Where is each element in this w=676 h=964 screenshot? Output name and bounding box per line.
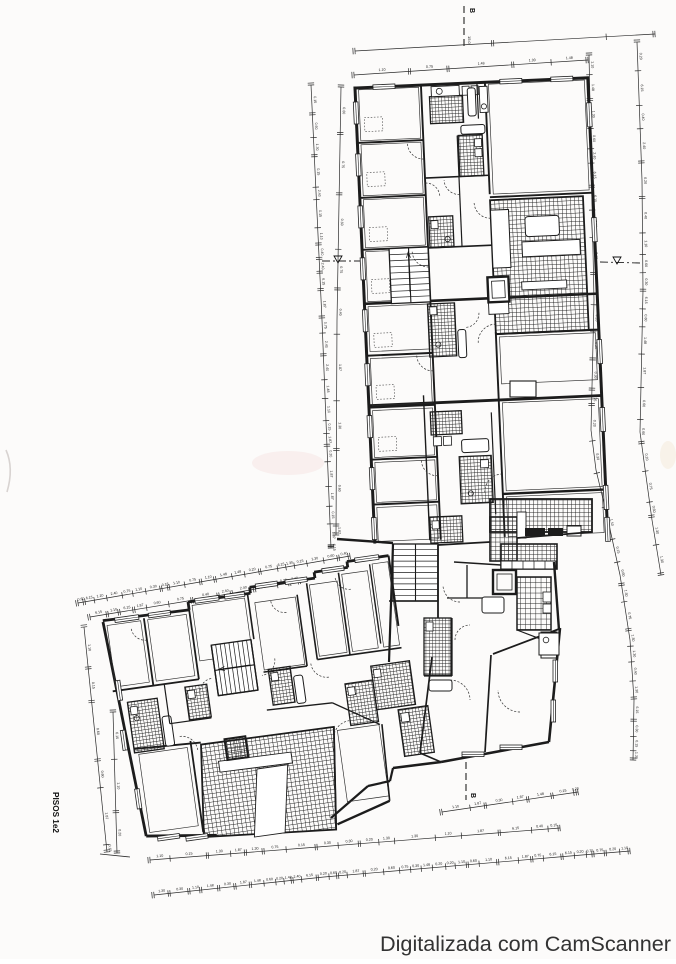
- svg-text:0.60: 0.60: [644, 314, 648, 321]
- svg-text:0.20: 0.20: [366, 837, 373, 842]
- svg-text:0.20: 0.20: [643, 177, 647, 184]
- svg-text:1.30: 1.30: [634, 686, 638, 693]
- svg-text:0.20: 0.20: [328, 450, 332, 457]
- svg-text:1.10: 1.10: [444, 831, 451, 836]
- svg-text:0.20: 0.20: [639, 53, 643, 60]
- svg-text:1.87: 1.87: [328, 436, 332, 443]
- svg-text:0.15: 0.15: [550, 823, 557, 828]
- svg-text:0.40: 0.40: [536, 824, 543, 829]
- svg-text:1.87: 1.87: [352, 869, 359, 874]
- svg-text:1.48: 1.48: [566, 56, 573, 60]
- svg-text:1.10: 1.10: [378, 68, 385, 72]
- svg-text:0.30: 0.30: [324, 841, 331, 846]
- svg-text:0.20: 0.20: [276, 876, 283, 881]
- svg-text:0.60: 0.60: [266, 877, 273, 882]
- svg-text:0.20: 0.20: [435, 862, 442, 867]
- svg-text:1.48: 1.48: [326, 385, 330, 392]
- svg-text:0.20: 0.20: [592, 420, 596, 427]
- svg-text:6.15: 6.15: [644, 297, 648, 304]
- svg-text:PISOS 1e2: PISOS 1e2: [51, 792, 60, 833]
- svg-text:2.40: 2.40: [293, 874, 300, 879]
- svg-text:6.15: 6.15: [635, 706, 639, 713]
- svg-text:Digitalizada com CamScanner: Digitalizada com CamScanner: [380, 933, 671, 956]
- svg-text:1.87: 1.87: [104, 812, 109, 819]
- svg-text:6.15: 6.15: [640, 84, 644, 91]
- svg-text:6.15: 6.15: [332, 544, 336, 551]
- svg-text:1.87: 1.87: [522, 854, 529, 859]
- svg-text:1.48: 1.48: [207, 883, 214, 888]
- svg-text:1.87: 1.87: [338, 364, 342, 371]
- svg-text:B: B: [469, 793, 476, 798]
- svg-text:6.15: 6.15: [306, 873, 313, 878]
- svg-text:0.20: 0.20: [320, 871, 327, 876]
- svg-text:1.30: 1.30: [411, 834, 418, 839]
- svg-text:6.15: 6.15: [115, 732, 119, 739]
- svg-text:0.20: 0.20: [339, 870, 346, 875]
- svg-text:2.40: 2.40: [642, 142, 646, 149]
- svg-text:1.10: 1.10: [485, 857, 492, 862]
- svg-text:0.75: 0.75: [426, 65, 433, 69]
- svg-text:0.30: 0.30: [176, 887, 183, 892]
- svg-text:1.10: 1.10: [644, 240, 648, 247]
- svg-text:0.75: 0.75: [596, 848, 603, 853]
- svg-text:1.48: 1.48: [423, 863, 430, 868]
- svg-text:B: B: [468, 8, 475, 13]
- svg-text:1.87: 1.87: [337, 527, 341, 534]
- svg-text:0.30: 0.30: [345, 839, 352, 844]
- svg-text:6.15: 6.15: [512, 826, 519, 831]
- svg-text:1.48: 1.48: [643, 337, 647, 344]
- svg-text:0.60: 0.60: [470, 859, 477, 864]
- svg-text:0.75: 0.75: [323, 322, 327, 329]
- svg-text:2.40: 2.40: [592, 152, 596, 159]
- svg-text:2.40: 2.40: [324, 341, 328, 348]
- svg-text:1.30: 1.30: [529, 58, 536, 62]
- svg-text:0.40: 0.40: [338, 309, 342, 316]
- svg-text:1.48: 1.48: [254, 878, 261, 883]
- svg-text:1.87: 1.87: [330, 493, 334, 500]
- svg-text:0.60: 0.60: [337, 485, 341, 492]
- svg-text:0.60: 0.60: [96, 728, 101, 735]
- svg-text:0.15: 0.15: [298, 843, 305, 848]
- svg-text:0.40: 0.40: [320, 248, 324, 255]
- svg-text:1.30: 1.30: [338, 422, 342, 429]
- svg-text:0.15: 0.15: [327, 423, 331, 430]
- svg-text:0.15: 0.15: [318, 210, 322, 217]
- svg-text:0.30: 0.30: [644, 278, 648, 285]
- svg-text:0.60: 0.60: [644, 260, 648, 267]
- svg-text:1.30: 1.30: [315, 143, 319, 150]
- svg-text:6.15: 6.15: [321, 278, 325, 285]
- svg-text:1.30: 1.30: [634, 752, 638, 759]
- svg-text:0.75: 0.75: [271, 845, 278, 850]
- svg-text:1.10: 1.10: [192, 885, 199, 890]
- svg-text:0.60: 0.60: [330, 871, 337, 876]
- svg-text:0.75: 0.75: [341, 161, 345, 168]
- svg-text:0.15: 0.15: [107, 844, 112, 851]
- svg-text:0.20: 0.20: [609, 847, 616, 852]
- svg-text:1.30: 1.30: [216, 849, 223, 854]
- svg-text:1.48: 1.48: [591, 84, 595, 91]
- svg-text:0.20: 0.20: [118, 829, 122, 836]
- svg-text:6.15: 6.15: [549, 852, 556, 857]
- svg-text:0.15: 0.15: [185, 852, 192, 857]
- svg-text:1.87: 1.87: [240, 880, 247, 885]
- svg-text:0.30: 0.30: [595, 453, 600, 460]
- svg-text:1.87: 1.87: [642, 367, 646, 374]
- svg-text:0.20: 0.20: [576, 850, 583, 855]
- svg-text:0.60: 0.60: [642, 400, 646, 407]
- svg-text:0.60: 0.60: [388, 866, 395, 871]
- svg-text:0.15: 0.15: [634, 740, 638, 747]
- svg-text:6.15: 6.15: [505, 856, 512, 861]
- svg-text:15.0: 15.0: [467, 36, 472, 45]
- svg-text:0.75: 0.75: [534, 853, 541, 858]
- svg-text:0.40: 0.40: [643, 212, 647, 219]
- svg-text:1.87: 1.87: [322, 301, 326, 308]
- svg-text:1.10: 1.10: [87, 644, 92, 651]
- svg-text:0.75: 0.75: [586, 849, 593, 854]
- svg-text:0.60: 0.60: [340, 219, 344, 226]
- svg-text:2.40: 2.40: [325, 364, 329, 371]
- svg-text:1.87: 1.87: [477, 829, 484, 834]
- svg-text:1.48: 1.48: [478, 61, 485, 65]
- svg-text:1.10: 1.10: [327, 406, 331, 413]
- svg-text:1.10: 1.10: [319, 233, 323, 240]
- svg-text:1.30: 1.30: [632, 650, 636, 657]
- svg-text:0.30: 0.30: [635, 725, 639, 732]
- svg-text:1.10: 1.10: [590, 61, 594, 68]
- svg-text:0.40: 0.40: [633, 668, 637, 675]
- svg-text:0.60: 0.60: [592, 135, 596, 142]
- svg-text:1.10: 1.10: [458, 860, 465, 865]
- svg-text:0.15: 0.15: [316, 168, 320, 175]
- svg-text:0.15: 0.15: [313, 96, 317, 103]
- svg-text:2.40: 2.40: [317, 190, 321, 197]
- svg-text:0.60: 0.60: [314, 122, 318, 129]
- svg-text:1.10: 1.10: [156, 854, 163, 859]
- svg-text:2.40: 2.40: [321, 262, 325, 269]
- svg-text:0.75: 0.75: [401, 865, 408, 870]
- svg-text:1.48: 1.48: [285, 875, 292, 880]
- svg-text:0.15: 0.15: [331, 511, 335, 518]
- svg-text:0.15: 0.15: [91, 682, 96, 689]
- svg-text:6.15: 6.15: [565, 851, 572, 856]
- svg-text:0.30: 0.30: [412, 864, 419, 869]
- svg-text:0.40: 0.40: [641, 113, 645, 120]
- svg-text:1.30: 1.30: [383, 836, 390, 841]
- svg-text:0.20: 0.20: [371, 867, 378, 872]
- svg-text:0.20: 0.20: [447, 861, 454, 866]
- svg-text:1.10: 1.10: [621, 846, 628, 851]
- svg-text:0.30: 0.30: [224, 882, 231, 887]
- svg-text:0.60: 0.60: [342, 107, 346, 114]
- svg-text:0.60: 0.60: [100, 770, 105, 777]
- svg-text:1.30: 1.30: [158, 889, 165, 894]
- svg-text:1.10: 1.10: [116, 782, 120, 789]
- svg-text:0.60: 0.60: [641, 428, 645, 435]
- svg-text:1.30: 1.30: [251, 846, 258, 851]
- svg-text:1.87: 1.87: [329, 470, 333, 477]
- svg-text:0.75: 0.75: [339, 266, 343, 273]
- svg-text:1.87: 1.87: [235, 848, 242, 853]
